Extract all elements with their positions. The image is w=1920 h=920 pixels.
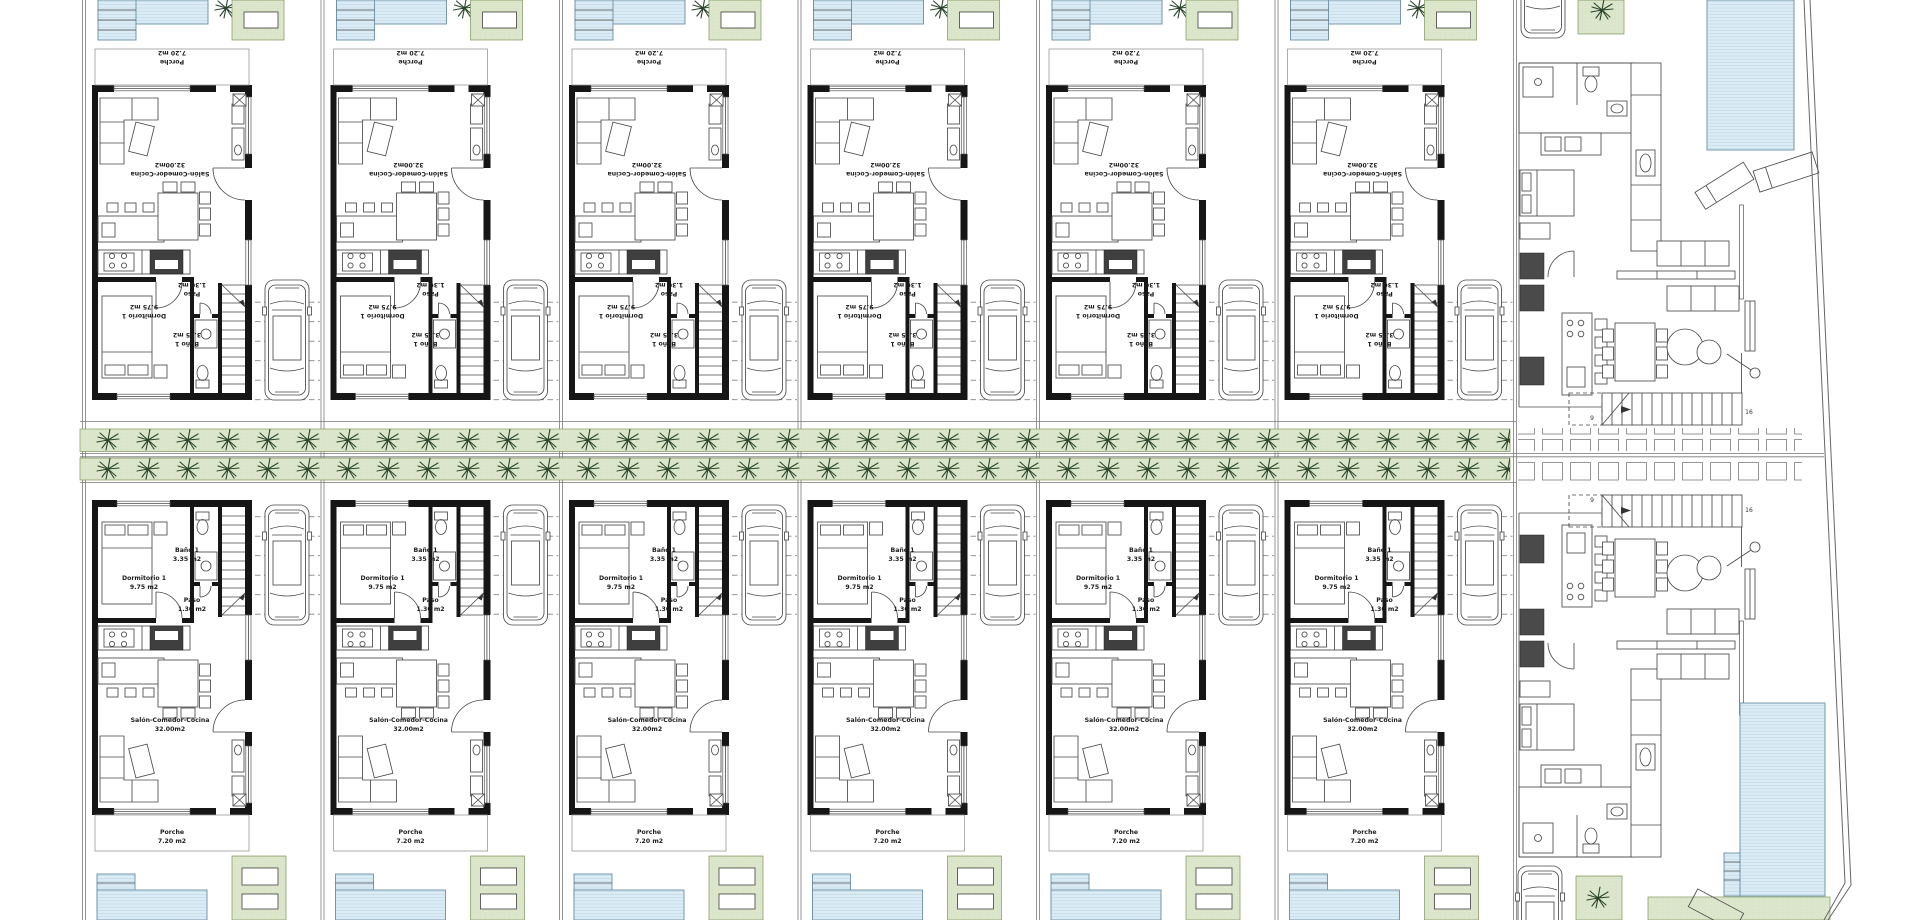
car-icon bbox=[1217, 280, 1266, 400]
edge-bottom bbox=[336, 856, 525, 920]
house-unit-top bbox=[1046, 49, 1206, 400]
villa-top: 9 16 bbox=[1519, 0, 1819, 425]
house-unit-bottom bbox=[569, 500, 729, 851]
sun-lounger bbox=[1753, 152, 1819, 192]
pool-steps bbox=[1724, 853, 1740, 896]
car-icon bbox=[1455, 505, 1504, 625]
house-unit-bottom bbox=[331, 500, 491, 851]
car-icon bbox=[1519, 0, 1568, 38]
car-icon bbox=[978, 280, 1027, 400]
edge-top bbox=[814, 0, 1000, 40]
villa-pool bbox=[1707, 0, 1794, 150]
walkway-line bbox=[80, 454, 1824, 457]
car-icon bbox=[501, 280, 550, 400]
stair-number: 16 bbox=[1745, 507, 1753, 514]
stair-number: 9 bbox=[1590, 497, 1594, 504]
edge-top bbox=[337, 0, 523, 40]
house-unit-top bbox=[92, 49, 252, 400]
sun-lounger bbox=[1695, 162, 1754, 209]
palm-row-lower bbox=[80, 458, 1510, 480]
edge-top bbox=[1052, 0, 1238, 40]
slat-band-lower bbox=[1518, 462, 1802, 485]
stair-number: 9 bbox=[1590, 415, 1594, 422]
car-icon bbox=[978, 505, 1027, 625]
house-unit-bottom bbox=[808, 500, 968, 851]
edge-bottom bbox=[1051, 856, 1240, 920]
edge-bottom bbox=[574, 856, 763, 920]
villa-house bbox=[1519, 495, 1760, 857]
car-icon bbox=[263, 280, 312, 400]
site-plan: Dormitorio 1 9.75 m2 Baño 1 3.35 m2 Paso… bbox=[0, 0, 1920, 920]
edge-bottom bbox=[1290, 856, 1479, 920]
house-unit-top bbox=[808, 49, 968, 400]
edge-bottom bbox=[813, 856, 1002, 920]
car-icon bbox=[1455, 280, 1504, 400]
villa-pool bbox=[1740, 703, 1825, 896]
edge-top bbox=[1291, 0, 1477, 40]
lawn-patch bbox=[1648, 897, 1830, 920]
car-icon bbox=[263, 505, 312, 625]
villa-zone: 9 16 9 16 bbox=[1516, 0, 1852, 920]
house-unit-bottom bbox=[92, 500, 252, 851]
car-icon bbox=[501, 505, 550, 625]
stair-number: 16 bbox=[1745, 409, 1753, 416]
plot-boundary bbox=[1514, 0, 1517, 920]
edge-top bbox=[98, 0, 284, 40]
edge-top bbox=[575, 0, 761, 40]
car-icon bbox=[1516, 866, 1565, 920]
house-unit-top bbox=[331, 49, 491, 400]
edge-bottom bbox=[97, 856, 286, 920]
car-icon bbox=[740, 280, 789, 400]
slat-band-upper bbox=[1518, 428, 1802, 451]
house-unit-bottom bbox=[1046, 500, 1206, 851]
house-unit-top bbox=[1285, 49, 1445, 400]
palm-row-upper bbox=[80, 429, 1510, 452]
street-corner-top-right bbox=[1519, 0, 1625, 38]
car-icon bbox=[740, 505, 789, 625]
house-unit-top bbox=[569, 49, 729, 400]
villa-bottom: 9 16 bbox=[1516, 495, 1831, 920]
car-icon bbox=[1217, 505, 1266, 625]
house-unit-bottom bbox=[1285, 500, 1445, 851]
